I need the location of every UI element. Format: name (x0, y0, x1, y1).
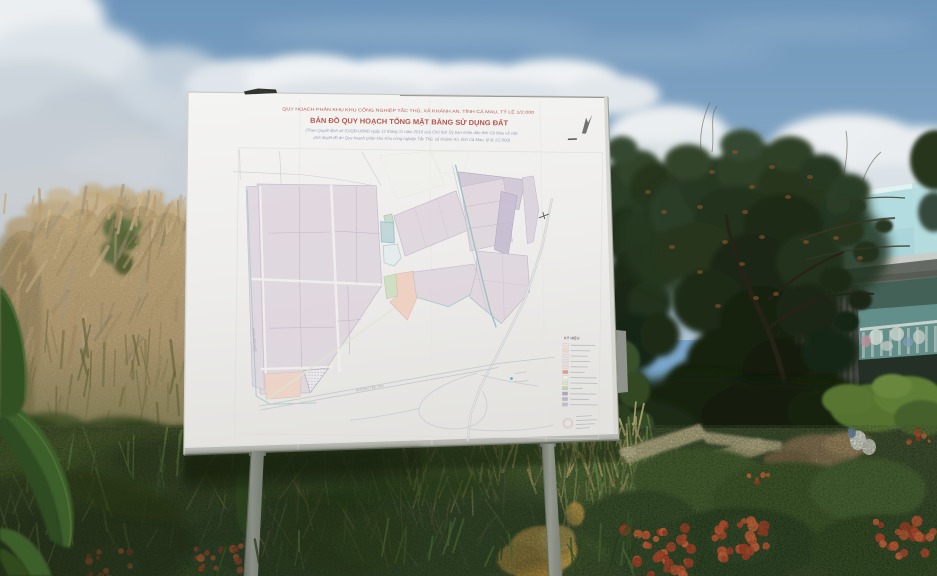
svg-text:KÝ HIỆU: KÝ HIỆU (564, 335, 580, 340)
